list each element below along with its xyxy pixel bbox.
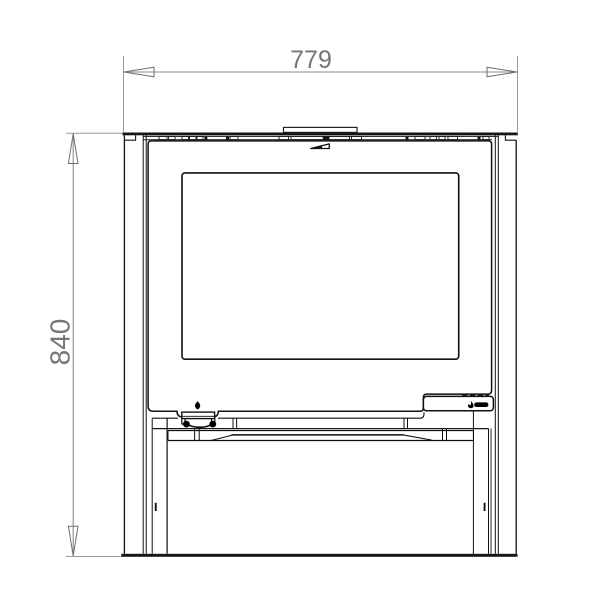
- svg-text:840: 840: [45, 319, 76, 366]
- svg-text:779: 779: [290, 46, 332, 74]
